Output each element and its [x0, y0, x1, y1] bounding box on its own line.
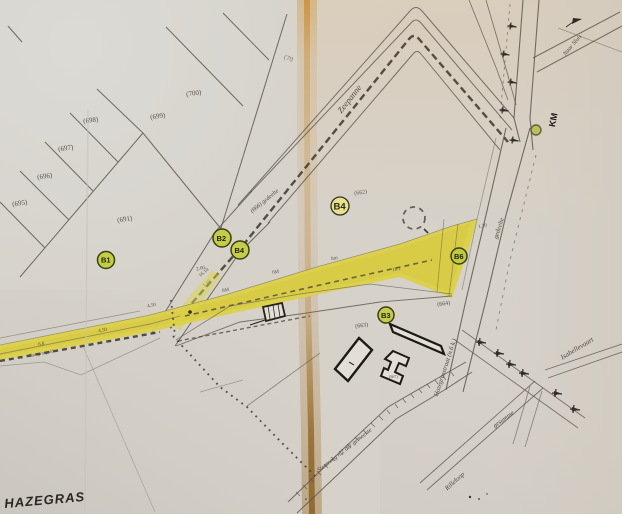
svg-text:B1: B1	[101, 256, 111, 265]
svg-text:B3: B3	[381, 311, 391, 320]
svg-text:B6: B6	[454, 252, 464, 261]
svg-text:B4: B4	[334, 202, 347, 213]
svg-text:B2: B2	[217, 234, 227, 243]
svg-text:(667): (667)	[389, 374, 398, 379]
svg-text:B4: B4	[235, 246, 245, 255]
